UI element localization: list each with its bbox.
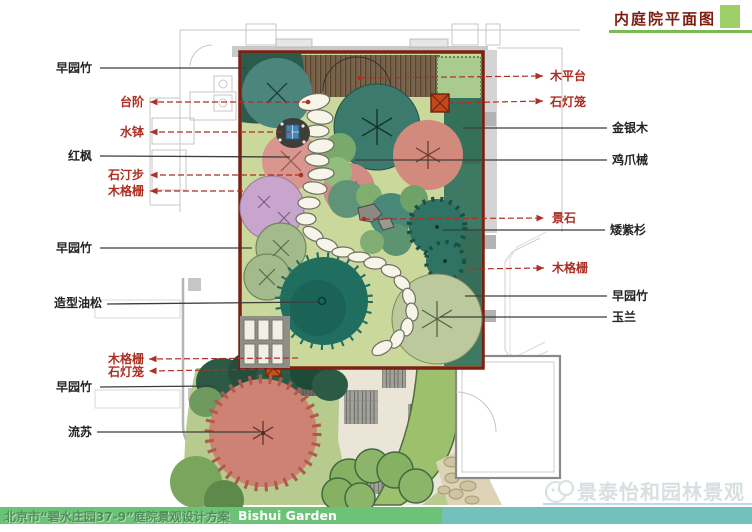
label-bamboo-3: 早园竹 xyxy=(0,380,92,394)
lower-building xyxy=(456,356,560,478)
label-japanese-maple: 鸡爪械 xyxy=(612,153,648,167)
label-stepping-stones: 石汀步 xyxy=(54,168,144,182)
watermark-logo-icon xyxy=(543,476,577,504)
label-magnolia: 玉兰 xyxy=(612,310,636,324)
page-title: 内庭院平面图 xyxy=(614,8,716,29)
label-honeysuckle: 金银木 xyxy=(612,121,648,135)
label-bamboo-4: 早园竹 xyxy=(612,289,648,303)
label-steps: 台阶 xyxy=(54,95,144,109)
stone-lantern-upper xyxy=(431,94,449,112)
label-water-bowl: 水钵 xyxy=(54,125,144,139)
label-wood-deck: 木平台 xyxy=(550,69,586,83)
label-wood-trellis-3: 木格栅 xyxy=(552,261,588,275)
label-dwarf-yew: 矮紫杉 xyxy=(610,223,646,237)
watermark: 景泰怡和园林景观 xyxy=(543,475,752,505)
label-stone-lantern-2: 石灯笼 xyxy=(54,365,144,379)
label-wood-trellis-2: 木格栅 xyxy=(54,352,144,366)
footer-bar: 北京市“碧水庄园37-9”庭院景观设计方案 Bishui Garden xyxy=(0,507,752,524)
footer-project-title: 北京市“碧水庄园37-9”庭院景观设计方案 xyxy=(4,508,230,525)
water-bowl xyxy=(276,118,310,148)
footer-english-title: Bishui Garden xyxy=(238,508,337,523)
garden-plan-drawing xyxy=(0,0,752,532)
label-fringe-tree: 流苏 xyxy=(0,425,92,439)
lower-garden xyxy=(170,352,560,520)
title-underline xyxy=(609,30,752,33)
courtyard xyxy=(240,52,483,368)
label-bamboo-2: 早园竹 xyxy=(0,241,92,255)
label-bamboo-1: 早园竹 xyxy=(0,61,92,75)
fringe-tree xyxy=(209,379,317,487)
label-stone-lantern-1: 石灯笼 xyxy=(550,95,586,109)
shaped-pine-tree xyxy=(280,257,368,345)
label-feature-rock: 景石 xyxy=(552,211,576,225)
title-accent-square xyxy=(720,5,740,28)
label-red-maple: 红枫 xyxy=(0,149,92,163)
label-shaped-pine: 造型油松 xyxy=(10,296,102,310)
corner-paving xyxy=(240,316,290,368)
watermark-text: 景泰怡和园林景观 xyxy=(577,476,745,505)
watermark-underline xyxy=(543,503,752,505)
slide-canvas: 早园竹 红枫 早园竹 造型油松 早园竹 流苏 台阶 水钵 石汀步 木格栅 木格栅… xyxy=(0,0,752,532)
label-wood-trellis-1: 木格栅 xyxy=(54,184,144,198)
